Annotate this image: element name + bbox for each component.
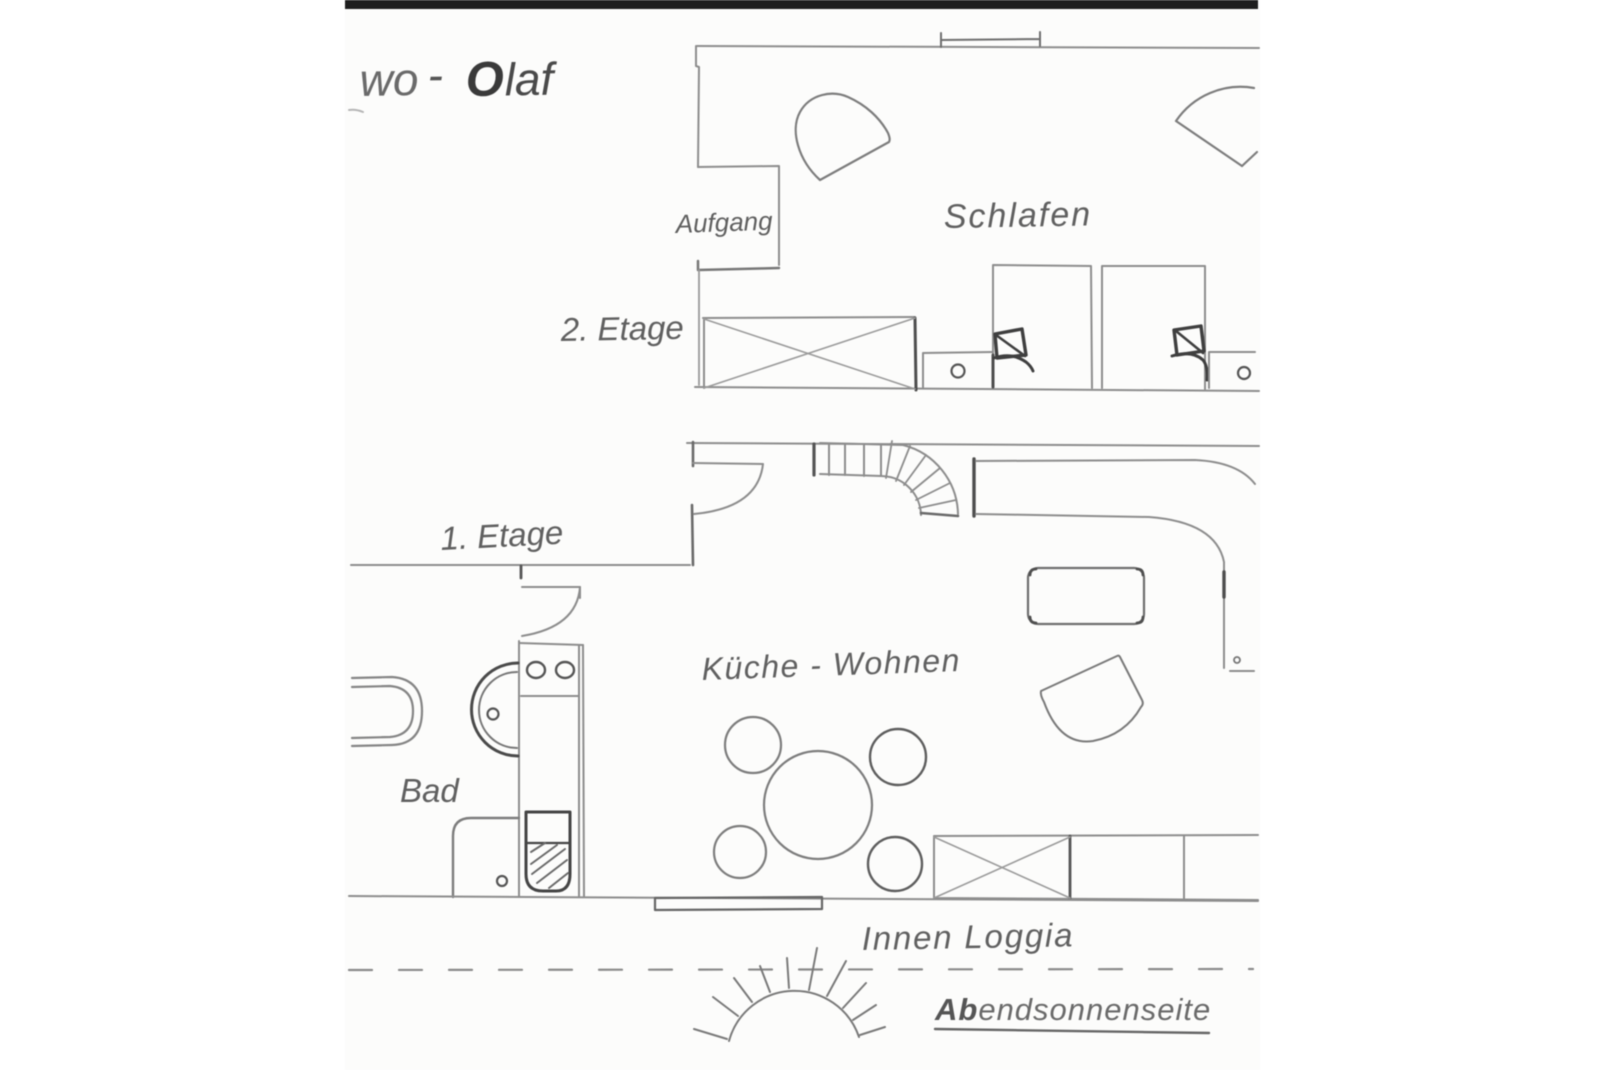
svg-text:O: O (465, 52, 504, 107)
svg-text:Schlafen: Schlafen (943, 195, 1092, 236)
svg-text:-: - (427, 49, 443, 101)
svg-text:Abendsonnenseite: Abendsonnenseite (934, 992, 1211, 1027)
svg-text:Bad: Bad (400, 772, 460, 809)
svg-text:Innen Loggia: Innen Loggia (861, 916, 1074, 957)
svg-text:wo: wo (359, 53, 419, 106)
svg-text:laf: laf (504, 53, 558, 106)
svg-text:1. Etage: 1. Etage (439, 514, 564, 557)
svg-text:2. Etage: 2. Etage (559, 309, 684, 348)
svg-text:Aufgang: Aufgang (673, 206, 773, 239)
